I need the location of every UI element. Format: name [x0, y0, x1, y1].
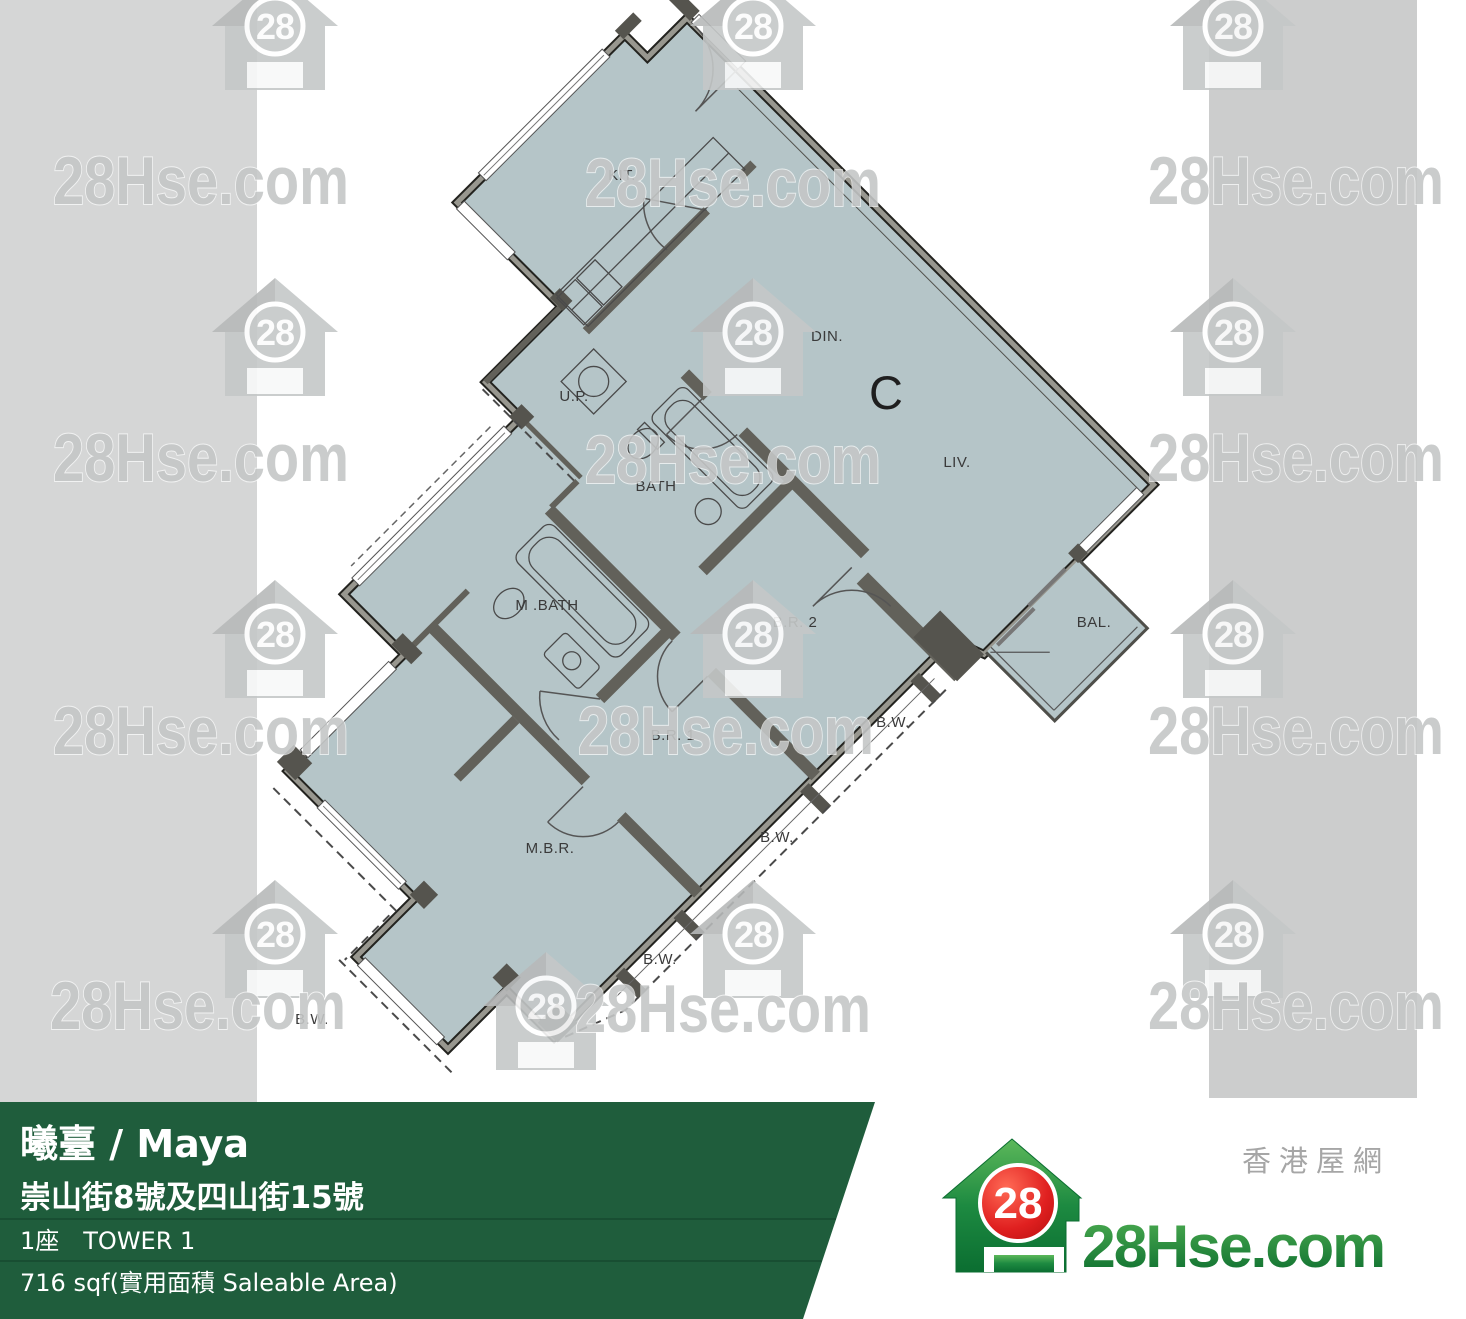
- watermark-house-icon: 28: [690, 0, 816, 90]
- logo-house-door-inner: [994, 1255, 1054, 1272]
- watermark-text: 28Hse.com: [53, 420, 349, 496]
- watermark-text: 28Hse.com: [1148, 693, 1444, 769]
- svg-text:28: 28: [1214, 614, 1252, 655]
- label-living: LIV.: [943, 454, 970, 471]
- label-master-bath: M .BATH: [515, 597, 578, 614]
- logo-brand-text: 28Hse.com: [1082, 1213, 1384, 1280]
- footer-bar: 曦臺 / Maya 崇山街8號及四山街15號 1座 TOWER 1 716 sq…: [0, 1102, 875, 1319]
- svg-text:28: 28: [734, 914, 772, 955]
- watermark-text: 28Hse.com: [53, 143, 349, 219]
- label-utility-platform: U.P.: [559, 388, 588, 405]
- label-bay-window-3: B.W.: [643, 951, 677, 968]
- watermark-text: 28Hse.com: [585, 422, 881, 498]
- floorplan-page: KIT. DIN. C LIV. U.P. BATH M .BATH B.R. …: [0, 0, 1466, 1319]
- label-balcony: BAL.: [1077, 614, 1112, 631]
- svg-text:28: 28: [1214, 914, 1252, 955]
- svg-text:28: 28: [527, 986, 565, 1027]
- logo-badge-number: 28: [994, 1179, 1043, 1228]
- estate-area: 716 sqf(實用面積 Saleable Area): [20, 1269, 398, 1297]
- label-unit-c: C: [869, 366, 903, 419]
- watermark-text: 28Hse.com: [578, 693, 874, 769]
- svg-text:28: 28: [256, 914, 294, 955]
- estate-address: 崇山街8號及四山街15號: [20, 1180, 364, 1216]
- watermark-house-icon: 28: [212, 0, 338, 90]
- logo-tagline: 香港屋網: [1242, 1144, 1390, 1178]
- watermark-house-icon: 28: [1170, 0, 1296, 90]
- label-bay-window-1: B.W.: [876, 714, 910, 731]
- estate-tower: 1座 TOWER 1: [20, 1227, 195, 1255]
- svg-text:28: 28: [1214, 6, 1252, 47]
- svg-text:28: 28: [734, 6, 772, 47]
- watermark-text: 28Hse.com: [1148, 143, 1444, 219]
- svg-text:28: 28: [256, 312, 294, 353]
- floorplan-canvas: KIT. DIN. C LIV. U.P. BATH M .BATH B.R. …: [0, 0, 1466, 1319]
- watermark-text: 28Hse.com: [1148, 968, 1444, 1044]
- svg-text:28: 28: [256, 6, 294, 47]
- watermark-text: 28Hse.com: [1148, 420, 1444, 496]
- svg-text:28: 28: [256, 614, 294, 655]
- label-dining: DIN.: [811, 328, 843, 345]
- label-master-bedroom: M.B.R.: [526, 840, 575, 857]
- watermark-text: 28Hse.com: [53, 693, 349, 769]
- watermark-text: 28Hse.com: [575, 971, 871, 1047]
- svg-text:28: 28: [734, 614, 772, 655]
- estate-title: 曦臺 / Maya: [20, 1122, 249, 1166]
- watermark-text: 28Hse.com: [50, 968, 346, 1044]
- svg-text:28: 28: [1214, 312, 1252, 353]
- svg-text:28: 28: [734, 312, 772, 353]
- label-bay-window-2: B.W.: [760, 829, 794, 846]
- watermark-text: 28Hse.com: [585, 145, 881, 221]
